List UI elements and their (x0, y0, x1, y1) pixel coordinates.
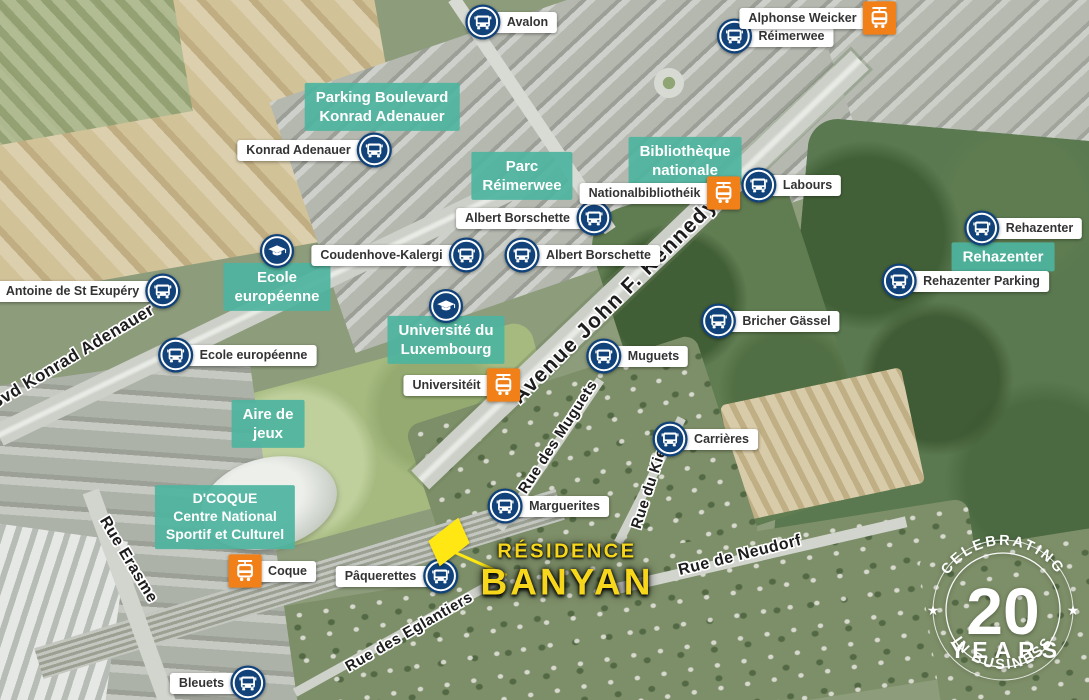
bus-icon (652, 421, 688, 457)
bus-icon (465, 4, 501, 40)
school-icon (429, 289, 464, 324)
area-line: Bibliothèque (640, 142, 731, 161)
bus-stop-ecole-europeenne: Ecole européenne (158, 337, 317, 373)
star-icon: ★ (927, 602, 940, 618)
stop-label: Rehazenter Parking (910, 271, 1049, 292)
stop-label: Konrad Adenauer (237, 140, 363, 161)
stop-label: Muguets (615, 346, 688, 367)
bus-stop-konrad-adenauer: Konrad Adenauer (237, 132, 392, 168)
tram-stop-nationalbibliotheik: Nationalbibliothéik (580, 176, 741, 210)
area-line: Konrad Adenauer (316, 107, 449, 126)
bus-icon (357, 132, 393, 168)
bus-stop-muguets: Muguets (586, 338, 688, 374)
tram-icon (706, 176, 740, 210)
project-name-line1: RÉSIDENCE (481, 541, 654, 564)
bus-stop-carrieres: Carrières (652, 421, 758, 457)
roundabout (654, 68, 684, 98)
area-line: européenne (234, 287, 319, 306)
bus-stop-rehazenter: Rehazenter (964, 210, 1082, 246)
stop-label: Carrières (681, 429, 758, 450)
area-line: Centre National (166, 508, 284, 526)
bus-stop-labours: Labours (741, 167, 841, 203)
bus-icon (449, 237, 485, 273)
bus-stop-coudenhove-kalergi: Coudenhove-Kalergi (311, 237, 484, 273)
area-line: Parc (482, 157, 561, 176)
bus-icon (145, 273, 181, 309)
tram-icon (487, 368, 521, 402)
badge-word-years: YEARS (950, 637, 1064, 663)
stop-label: Alphonse Weicker (739, 8, 869, 29)
bus-stop-rehazenter-parking: Rehazenter Parking (881, 263, 1049, 299)
area-line: Aire de (243, 405, 294, 424)
bus-stop-avalon: Avalon (465, 4, 557, 40)
stop-label: Coque (255, 561, 316, 582)
stop-label: Bricher Gässel (729, 311, 839, 332)
bus-stop-bricher-gassel: Bricher Gässel (700, 303, 839, 339)
stop-label: Bleuets (170, 673, 237, 694)
bus-icon (230, 665, 266, 700)
area-line: Luxembourg (398, 340, 493, 359)
bus-icon (700, 303, 736, 339)
tram-stop-universiteit: Universitéit (403, 368, 520, 402)
area-line: D'COQUE (166, 490, 284, 508)
area-line: Parking Boulevard (316, 88, 449, 107)
bus-stop-marguerites: Marguerites (487, 488, 609, 524)
star-icon: ★ (1067, 602, 1080, 618)
stop-label: Albert Borschette (533, 245, 660, 266)
project-name: RÉSIDENCE BANYAN (481, 541, 654, 604)
bus-icon (487, 488, 523, 524)
stop-label: Avalon (494, 12, 557, 33)
bus-icon (741, 167, 777, 203)
location-map: Bvd Konrad Adenauer Avenue John F. Kenne… (0, 0, 1089, 700)
tram-stop-coque: Coque (228, 554, 316, 588)
project-name-line2: BANYAN (481, 562, 654, 604)
area-line: Université du (398, 321, 493, 340)
area-label-parking-boulevard-konrad-adenauer: Parking Boulevard Konrad Adenauer (305, 83, 460, 131)
bus-icon (881, 263, 917, 299)
bus-icon (586, 338, 622, 374)
bus-stop-antoine-de-st-exupery: Antoine de St Exupéry (0, 273, 181, 309)
area-label-parc-reimerwee: Parc Réimerwee (471, 152, 572, 200)
stop-label: Antoine de St Exupéry (0, 281, 152, 302)
area-line: Ecole (234, 268, 319, 287)
stop-label: Ecole européenne (187, 345, 317, 366)
stop-label: Rehazenter (993, 218, 1082, 239)
area-line: Réimerwee (482, 176, 561, 195)
20-years-badge: CELEBRATING IN BUSINESS 20 YEARS ★ ★ (918, 525, 1088, 695)
area-line: Sportif et Culturel (166, 526, 284, 544)
stop-label: Marguerites (516, 496, 609, 517)
graduation-cap-icon (429, 289, 464, 324)
bus-icon (158, 337, 194, 373)
area-line: jeux (243, 424, 294, 443)
stop-label: Coudenhove-Kalergi (311, 245, 455, 266)
stop-label: Nationalbibliothéik (580, 183, 714, 204)
bus-icon (504, 237, 540, 273)
stop-label: Universitéit (403, 375, 493, 396)
stop-label: Albert Borschette (456, 208, 583, 229)
tram-stop-alphonse-weicker: Alphonse Weicker (739, 1, 896, 35)
stop-label: Pâquerettes (336, 566, 430, 587)
badge-arc-top: CELEBRATING (938, 533, 1068, 578)
bus-stop-bleuets: Bleuets (170, 665, 266, 700)
tram-icon (863, 1, 897, 35)
stop-label: Labours (770, 175, 841, 196)
area-label-aire-de-jeux: Aire de jeux (232, 400, 305, 448)
tram-icon (228, 554, 262, 588)
area-label-dcoque: D'COQUE Centre National Sportif et Cultu… (155, 485, 295, 549)
graduation-cap-icon (260, 234, 295, 269)
bus-icon (964, 210, 1000, 246)
school-icon (260, 234, 295, 269)
bus-stop-albert-borschette-2: Albert Borschette (504, 237, 660, 273)
